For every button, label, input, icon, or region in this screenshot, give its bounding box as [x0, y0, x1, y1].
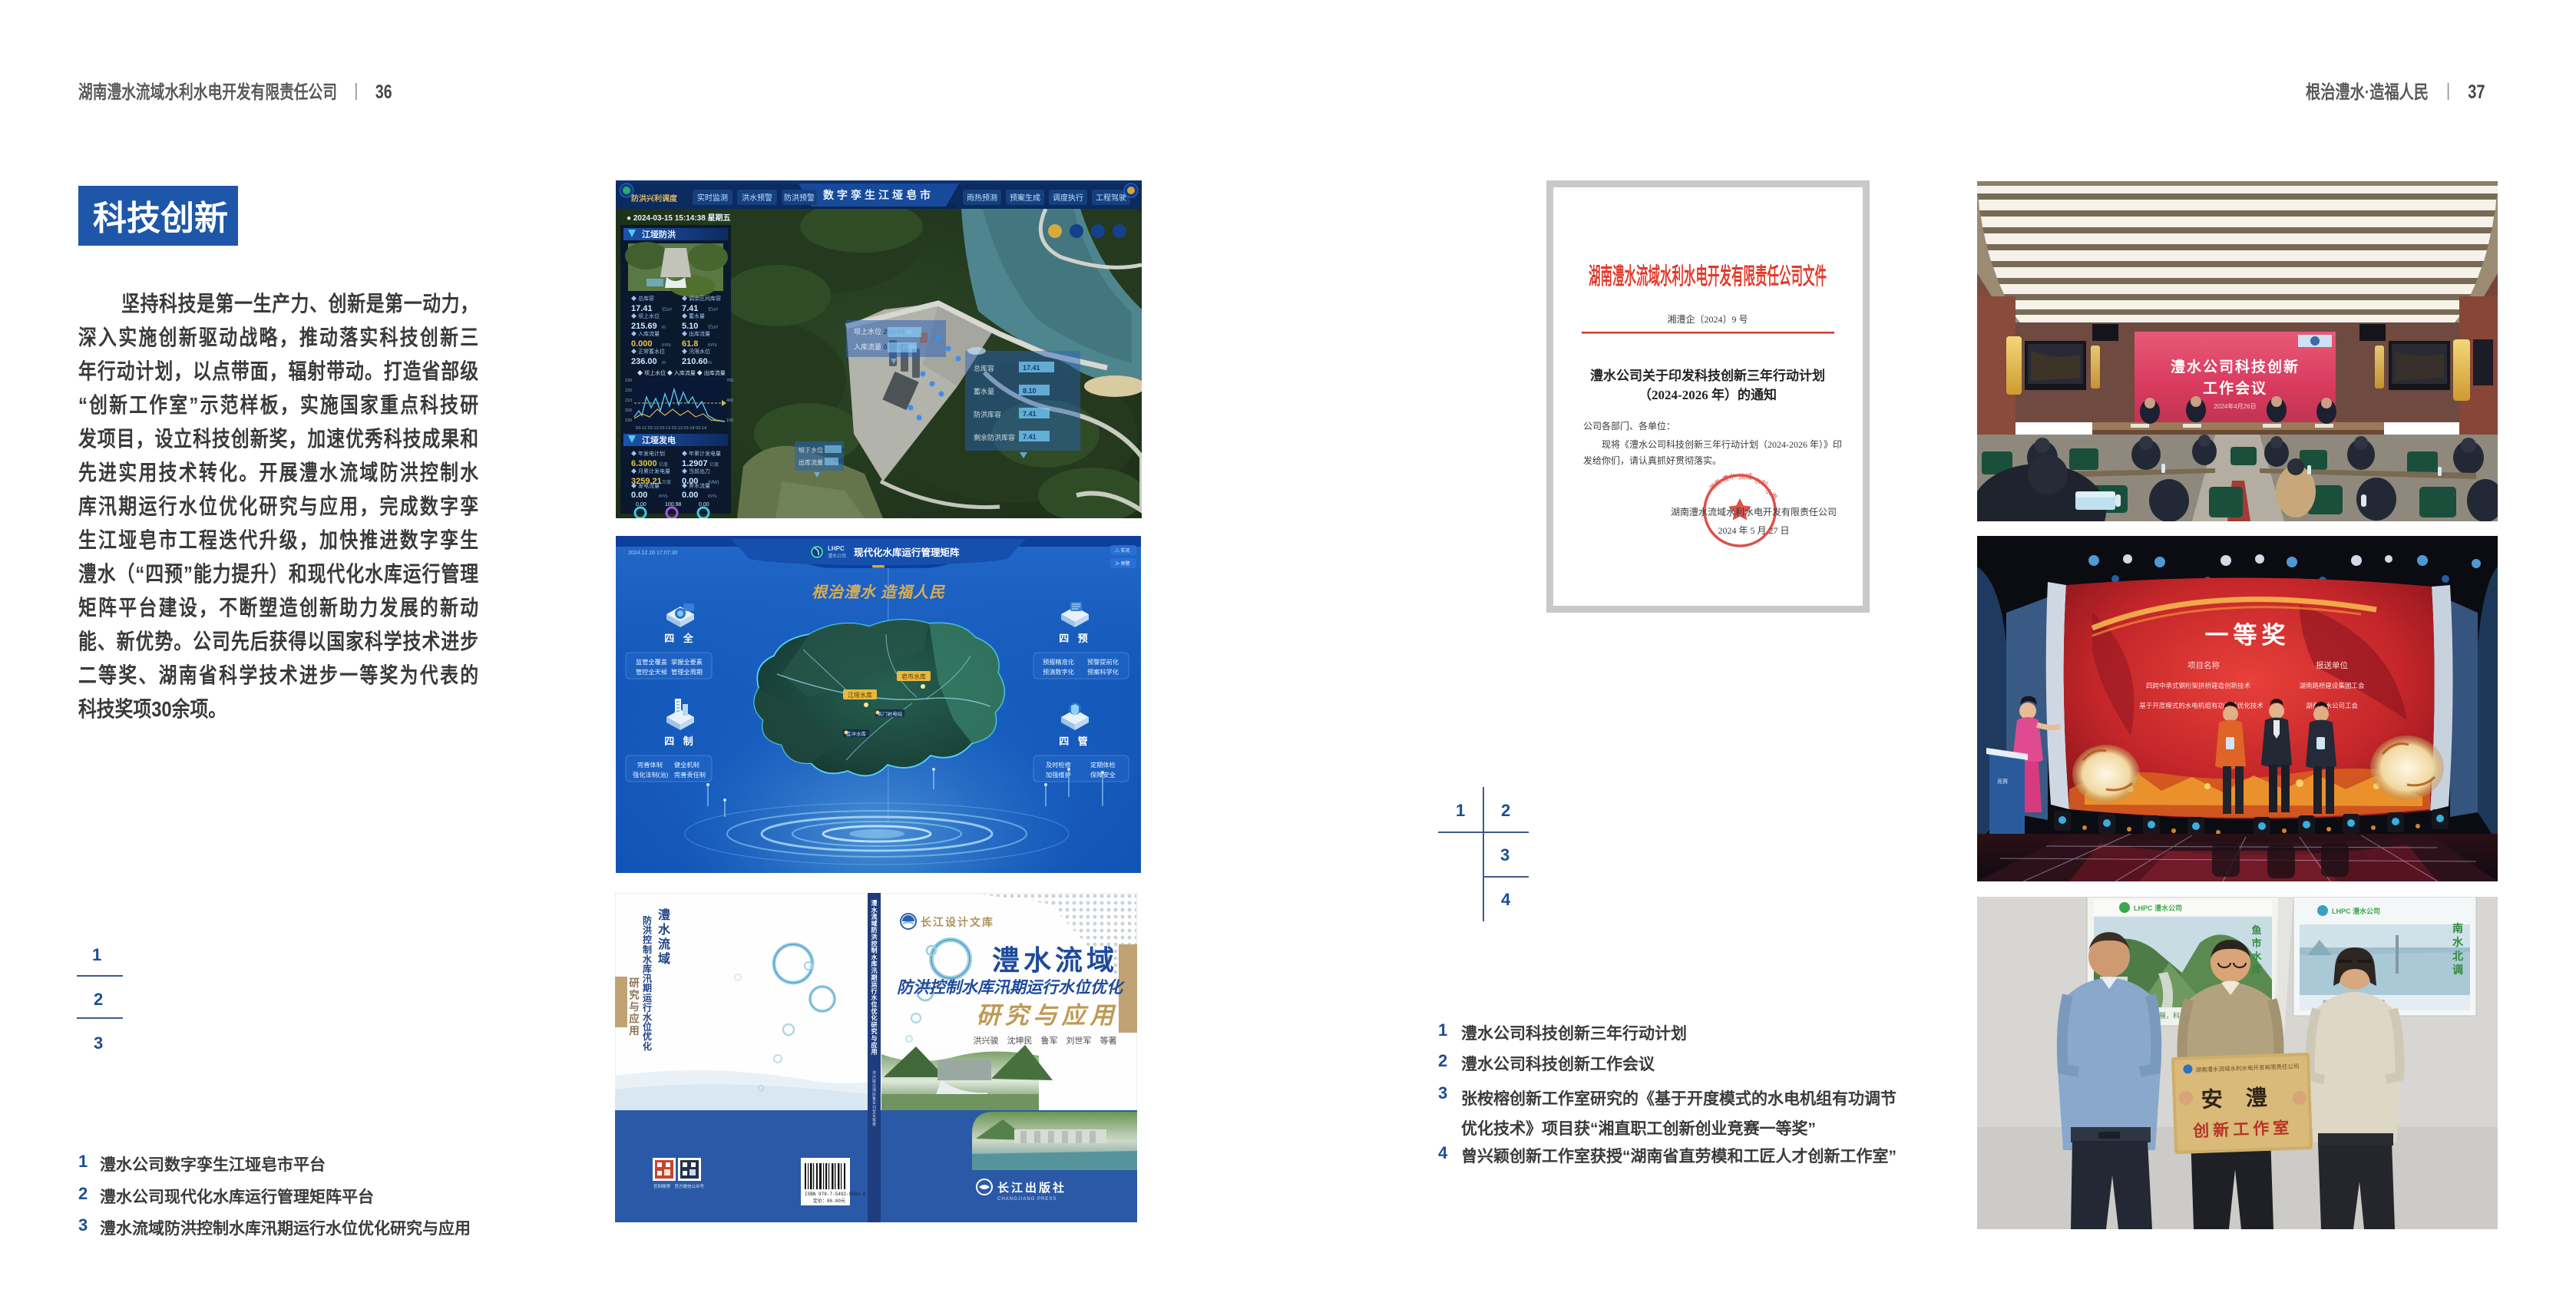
svg-text:≫ 预警: ≫ 预警 — [1115, 560, 1130, 567]
svg-text:四跨中承式钢桁架拱桥建造创新技术: 四跨中承式钢桁架拱桥建造创新技术 — [2146, 682, 2251, 689]
svg-text:7.41: 7.41 — [1023, 410, 1037, 418]
svg-text:7.41: 7.41 — [682, 304, 698, 313]
svg-text:报送单位: 报送单位 — [2316, 660, 2349, 670]
svg-text:化: 化 — [643, 1040, 652, 1052]
svg-text:预演数字化: 预演数字化 — [1043, 668, 1074, 676]
svg-text:根治澧水 造福人民: 根治澧水 造福人民 — [812, 584, 945, 601]
svg-text:应: 应 — [629, 1013, 640, 1025]
svg-text:蓄水量: 蓄水量 — [974, 387, 994, 395]
svg-text:亿m³: 亿m³ — [708, 306, 718, 312]
svg-text:澧水公司科技创新: 澧水公司科技创新 — [2171, 358, 2300, 375]
svg-text:万度: 万度 — [662, 479, 671, 485]
svg-text:域: 域 — [658, 951, 670, 966]
svg-text:运: 运 — [871, 981, 878, 988]
svg-text:库: 库 — [2251, 964, 2261, 975]
svg-text:亿度: 亿度 — [709, 461, 719, 468]
svg-text:管理全周期: 管理全周期 — [671, 668, 703, 676]
svg-text:0.00: 0.00 — [682, 491, 698, 500]
svg-text:水: 水 — [871, 906, 878, 914]
svg-text:宜冲水库: 宜冲水库 — [846, 730, 867, 737]
svg-text:优: 优 — [871, 1007, 878, 1015]
svg-text:市: 市 — [2251, 937, 2261, 949]
svg-text:△ 实况: △ 实况 — [1115, 547, 1130, 554]
svg-text:亿度: 亿度 — [659, 461, 668, 468]
svg-text:公司各部门、各单位：: 公司各部门、各单位： — [1583, 420, 1675, 431]
svg-text:03-12 03-13 03-13 03-13 03: 03-12 03-13 03-13 03-13 03-14 03-14 — [636, 426, 706, 431]
svg-text:江垭防洪: 江垭防洪 — [642, 229, 676, 240]
svg-text:四 制: 四 制 — [664, 736, 696, 747]
svg-text:南: 南 — [2452, 922, 2463, 935]
svg-text:190: 190 — [625, 418, 632, 423]
svg-text:防洪库容: 防洪库容 — [974, 410, 1001, 418]
svg-text:湖南路桥建设集团工会: 湖南路桥建设集团工会 — [2299, 682, 2365, 689]
svg-text:调度执行: 调度执行 — [1053, 193, 1083, 203]
svg-text:流域: 流域 — [1738, 472, 1752, 481]
svg-text:防洪预警: 防洪预警 — [784, 193, 815, 203]
svg-text:现代化水库运行管理矩阵: 现代化水库运行管理矩阵 — [854, 547, 960, 558]
svg-text:发给你们，请认真抓好贯彻落实。: 发给你们，请认真抓好贯彻落实。 — [1583, 455, 1721, 466]
svg-text:江垭发电: 江垭发电 — [642, 435, 676, 445]
svg-text:鱼: 鱼 — [2251, 924, 2261, 936]
svg-text:究: 究 — [629, 989, 640, 1001]
svg-text:流: 流 — [658, 937, 670, 951]
svg-text:CHANGJIANG PRESS: CHANGJIANG PRESS — [997, 1197, 1057, 1202]
svg-text:100: 100 — [726, 418, 733, 423]
svg-text:5.10: 5.10 — [682, 322, 698, 331]
svg-text:亿m³: 亿m³ — [708, 324, 718, 330]
svg-text:及时检修: 及时检修 — [1046, 761, 1071, 769]
svg-text:水: 水 — [871, 994, 878, 1001]
svg-text:研: 研 — [629, 977, 640, 989]
svg-text:应: 应 — [871, 1041, 878, 1049]
svg-text:用: 用 — [871, 1049, 878, 1056]
svg-text:8.10: 8.10 — [1023, 387, 1037, 395]
svg-text:化: 化 — [871, 1014, 878, 1022]
svg-text:工作会议: 工作会议 — [2203, 379, 2267, 397]
svg-text:四 全: 四 全 — [664, 633, 696, 644]
svg-text:预案生成: 预案生成 — [1010, 193, 1040, 203]
svg-text:研: 研 — [871, 1021, 878, 1028]
svg-text:预警提前化: 预警提前化 — [1087, 658, 1119, 666]
svg-text:期: 期 — [871, 974, 878, 981]
svg-text:ISBN 978-7-5492-9563-8: ISBN 978-7-5492-9563-8 — [805, 1192, 866, 1197]
svg-text:● 2024-03-15 15:14:38 星期五: ● 2024-03-15 15:14:38 星期五 — [627, 213, 731, 223]
svg-text:健全机制: 健全机制 — [674, 761, 699, 769]
svg-text:水: 水 — [2452, 936, 2464, 949]
svg-text:700: 700 — [726, 379, 733, 383]
svg-text:工程驾驶: 工程驾驶 — [1096, 193, 1126, 203]
svg-text:230: 230 — [625, 379, 632, 383]
svg-text:研究与应用: 研究与应用 — [977, 1002, 1119, 1029]
svg-text:长江设计文库: 长江设计文库 — [921, 916, 994, 928]
svg-text:预报精准化: 预报精准化 — [1043, 658, 1074, 666]
svg-text:官网微博 官方微信公众号: 官网微博 官方微信公众号 — [653, 1183, 705, 1189]
svg-text:一等奖: 一等奖 — [2205, 622, 2290, 649]
svg-text:定价：86.00元: 定价：86.00元 — [813, 1198, 845, 1204]
svg-text:◆ 出库流量: ◆ 出库流量 — [682, 330, 710, 337]
svg-text:(MW): (MW) — [708, 481, 719, 485]
svg-text:与: 与 — [629, 1001, 640, 1013]
svg-text:项目名称: 项目名称 — [2187, 660, 2221, 670]
svg-text:管控全天候: 管控全天候 — [636, 668, 667, 676]
svg-text:0.00: 0.00 — [682, 477, 698, 486]
svg-text:四 预: 四 预 — [1059, 633, 1091, 644]
svg-text:236.00: 236.00 — [631, 357, 657, 366]
svg-text:水: 水 — [658, 922, 671, 937]
svg-text:◆ 坝上水位 ◆ 入库流量 ◆ 出库流量: ◆ 坝上水位 ◆ 入库流量 ◆ 出库流量 — [637, 369, 726, 376]
svg-text:◆ 调余区间库容: ◆ 调余区间库容 — [682, 295, 721, 302]
svg-text:调: 调 — [2452, 964, 2463, 977]
svg-text:洪兴骏 沈坤民 鲁军 刘世军 等著: 洪兴骏 沈坤民 鲁军 刘世军 等著 — [974, 1035, 1117, 1046]
svg-text:1.2907: 1.2907 — [682, 459, 708, 468]
svg-text:◆ 汛限水位: ◆ 汛限水位 — [682, 348, 710, 355]
svg-text:安澧: 安澧 — [2201, 1085, 2290, 1113]
svg-text:掌握全要素: 掌握全要素 — [671, 658, 703, 666]
svg-text:◆ 年累计发电量: ◆ 年累计发电量 — [682, 450, 721, 457]
svg-text:17.41: 17.41 — [631, 304, 653, 313]
svg-text:湘澧企〔2024〕9 号: 湘澧企〔2024〕9 号 — [1667, 313, 1748, 325]
svg-text:加强维护: 加强维护 — [1046, 771, 1071, 779]
svg-text:澧: 澧 — [658, 908, 670, 922]
svg-text:210: 210 — [625, 398, 632, 403]
svg-text:LHPC 澧水公司: LHPC 澧水公司 — [2134, 904, 2182, 912]
svg-text:m³/s: m³/s — [662, 343, 671, 348]
svg-text:汛: 汛 — [871, 967, 878, 974]
svg-text:◆ 入库流量: ◆ 入库流量 — [631, 330, 660, 337]
svg-text:0.000: 0.000 — [631, 339, 653, 349]
svg-text:7.41: 7.41 — [1023, 433, 1037, 441]
svg-text:澧水公司关于印发科技创新三年行动计划: 澧水公司关于印发科技创新三年行动计划 — [1590, 368, 1825, 383]
svg-text:亿m³: 亿m³ — [662, 306, 672, 312]
svg-text:◆ 年发电计划: ◆ 年发电计划 — [631, 450, 665, 457]
svg-text:防洪控制水库汛期运行水位优化: 防洪控制水库汛期运行水位优化 — [897, 978, 1125, 997]
svg-text:究: 究 — [871, 1027, 878, 1035]
svg-text:定期体检: 定期体检 — [1090, 761, 1116, 769]
svg-text:江垭水库: 江垭水库 — [848, 691, 872, 699]
svg-text:2024年4月26日: 2024年4月26日 — [2214, 402, 2256, 410]
svg-text:LHPC 澧水公司: LHPC 澧水公司 — [2332, 907, 2380, 915]
svg-text:（2024-2026 年）的通知: （2024-2026 年）的通知 — [1639, 387, 1777, 402]
svg-text:m: m — [662, 326, 666, 330]
svg-text:防: 防 — [871, 926, 878, 934]
svg-text:著: 著 — [872, 1122, 876, 1127]
svg-text:流: 流 — [871, 913, 878, 921]
svg-text:6.3000: 6.3000 — [631, 459, 657, 468]
svg-text:210.60: 210.60 — [682, 357, 708, 366]
svg-text:湖南澧水公司工会: 湖南澧水公司工会 — [2306, 702, 2359, 709]
svg-text:关门岩电站: 关门岩电站 — [878, 710, 903, 717]
svg-text:400: 400 — [726, 398, 733, 403]
svg-text:61.8: 61.8 — [682, 339, 698, 349]
svg-text:实时监测: 实时监测 — [697, 193, 728, 203]
svg-text:◆ 正常蓄水位: ◆ 正常蓄水位 — [631, 348, 665, 355]
svg-text:m³/s: m³/s — [708, 494, 717, 499]
svg-text:◆ 月累计发电量: ◆ 月累计发电量 — [631, 468, 670, 474]
svg-text:澧: 澧 — [871, 899, 878, 907]
svg-text:0.00: 0.00 — [631, 491, 647, 500]
svg-text:与: 与 — [871, 1034, 878, 1042]
svg-text:洪水预警: 洪水预警 — [742, 193, 772, 203]
svg-text:◆ 当前出力: ◆ 当前出力 — [682, 468, 710, 474]
svg-text:监管全覆盖: 监管全覆盖 — [636, 658, 667, 666]
svg-text:完善责任制: 完善责任制 — [674, 771, 706, 779]
svg-text:基于开度模式的水电机组有功调节优化技术: 基于开度模式的水电机组有功调节优化技术 — [2139, 702, 2264, 709]
svg-text:位: 位 — [871, 1000, 878, 1008]
svg-text:完善体制: 完善体制 — [637, 761, 663, 769]
svg-text:17.41: 17.41 — [1023, 364, 1040, 372]
svg-text:2024.12.16 17:07:30: 2024.12.16 17:07:30 — [628, 551, 677, 556]
svg-text:防洪兴利调度: 防洪兴利调度 — [631, 193, 678, 203]
svg-text:皂市水库: 皂市水库 — [901, 673, 926, 680]
svg-text:现将《澧水公司科技创新三年行动计划（2024-2026 年）: 现将《澧水公司科技创新三年行动计划（2024-2026 年）》印 — [1602, 438, 1842, 450]
svg-text:LHPC: LHPC — [828, 545, 845, 552]
svg-text:◆ 蓄水量: ◆ 蓄水量 — [682, 312, 705, 319]
svg-text:m: m — [662, 361, 666, 365]
svg-text:2024 年 5 月 27 日: 2024 年 5 月 27 日 — [1718, 525, 1789, 536]
svg-text:220: 220 — [625, 388, 632, 393]
svg-text:用: 用 — [629, 1025, 640, 1037]
svg-text:◆ 坝上水位: ◆ 坝上水位 — [631, 312, 660, 319]
svg-text:库: 库 — [871, 960, 878, 967]
svg-text:水: 水 — [871, 953, 878, 960]
svg-text:澧水公司: 澧水公司 — [828, 553, 846, 559]
svg-text:水: 水 — [2251, 951, 2262, 962]
svg-text:总库容: 总库容 — [974, 364, 994, 372]
svg-text:m³/s: m³/s — [659, 494, 668, 499]
svg-text:竞赛: 竞赛 — [1997, 778, 2008, 785]
svg-text:m: m — [708, 361, 712, 365]
svg-text:湖南澧水流域水利水电开发有限责任公司文件: 湖南澧水流域水利水电开发有限责任公司文件 — [1589, 263, 1827, 289]
svg-text:创新工作室: 创新工作室 — [2192, 1119, 2293, 1141]
svg-text:控: 控 — [871, 940, 878, 947]
svg-text:四 管: 四 管 — [1059, 736, 1091, 747]
svg-text:北: 北 — [2452, 951, 2463, 963]
svg-text:3259.21: 3259.21 — [631, 477, 662, 486]
svg-text:域: 域 — [871, 919, 878, 927]
svg-text:剩余防洪库容: 剩余防洪库容 — [974, 433, 1015, 441]
svg-text:长江出版社: 长江出版社 — [997, 1181, 1066, 1195]
svg-text:215.69: 215.69 — [631, 322, 657, 331]
svg-text:行: 行 — [871, 987, 878, 994]
svg-text:200: 200 — [625, 408, 632, 413]
svg-text:预案科学化: 预案科学化 — [1087, 668, 1119, 676]
svg-text:雨热预测: 雨热预测 — [967, 193, 997, 203]
svg-text:洪: 洪 — [871, 933, 878, 941]
svg-text:制: 制 — [871, 947, 878, 954]
svg-text:m³/s: m³/s — [708, 343, 717, 348]
svg-text:◆ 总库容: ◆ 总库容 — [631, 295, 654, 302]
svg-text:数字孪生江垭皂市: 数字孪生江垭皂市 — [823, 189, 934, 201]
svg-text:湖南澧水流域水利水电开发有限责任公司: 湖南澧水流域水利水电开发有限责任公司 — [1671, 506, 1837, 517]
svg-text:强化法制(治): 强化法制(治) — [633, 771, 669, 779]
svg-text:澧水流域: 澧水流域 — [992, 944, 1118, 976]
